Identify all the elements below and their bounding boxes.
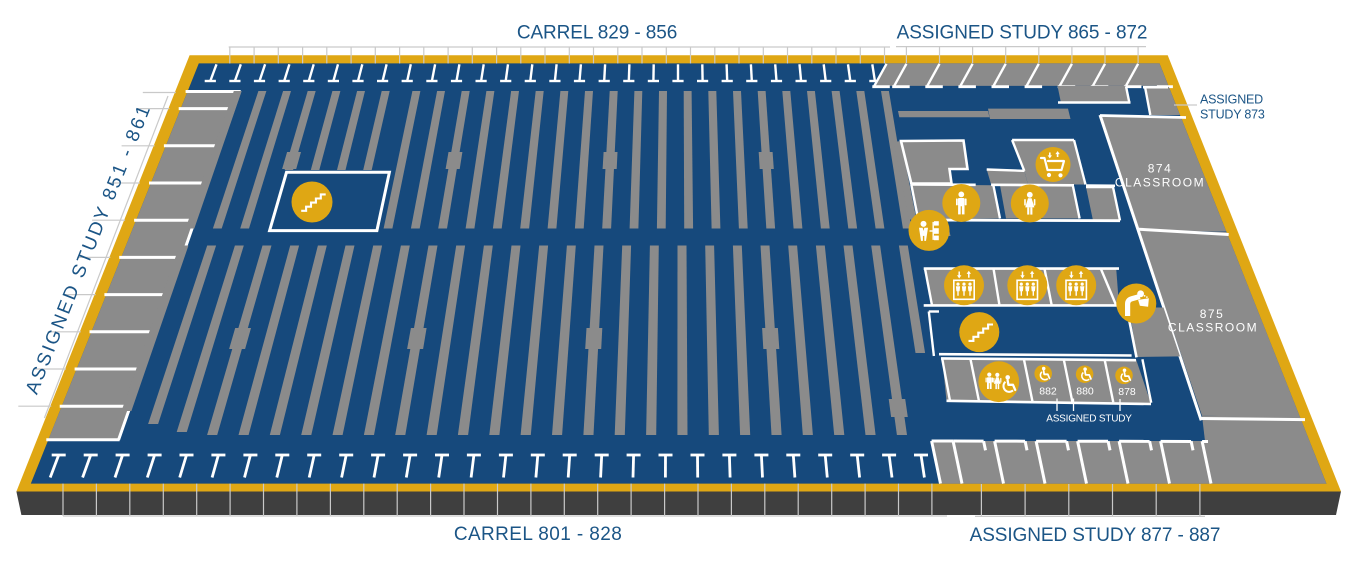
- svg-text:874: 874: [1148, 162, 1173, 176]
- svg-text:875: 875: [1200, 307, 1225, 321]
- svg-text:CLASSROOM: CLASSROOM: [1168, 321, 1258, 335]
- svg-text:ASSIGNED: ASSIGNED: [1200, 93, 1263, 107]
- svg-text:STUDY 873: STUDY 873: [1200, 108, 1265, 122]
- svg-text:878: 878: [1118, 386, 1136, 398]
- svg-text:CARREL 801 - 828: CARREL 801 - 828: [454, 524, 622, 545]
- svg-text:ASSIGNED STUDY: ASSIGNED STUDY: [1046, 414, 1132, 425]
- svg-text:ASSIGNED STUDY 877 - 887: ASSIGNED STUDY 877 - 887: [970, 525, 1221, 546]
- svg-text:882: 882: [1039, 386, 1057, 398]
- svg-text:CARREL 829 - 856: CARREL 829 - 856: [517, 23, 677, 44]
- svg-text:880: 880: [1076, 386, 1094, 398]
- svg-text:ASSIGNED STUDY 865 - 872: ASSIGNED STUDY 865 - 872: [897, 23, 1148, 44]
- svg-text:CLASSROOM: CLASSROOM: [1115, 176, 1205, 190]
